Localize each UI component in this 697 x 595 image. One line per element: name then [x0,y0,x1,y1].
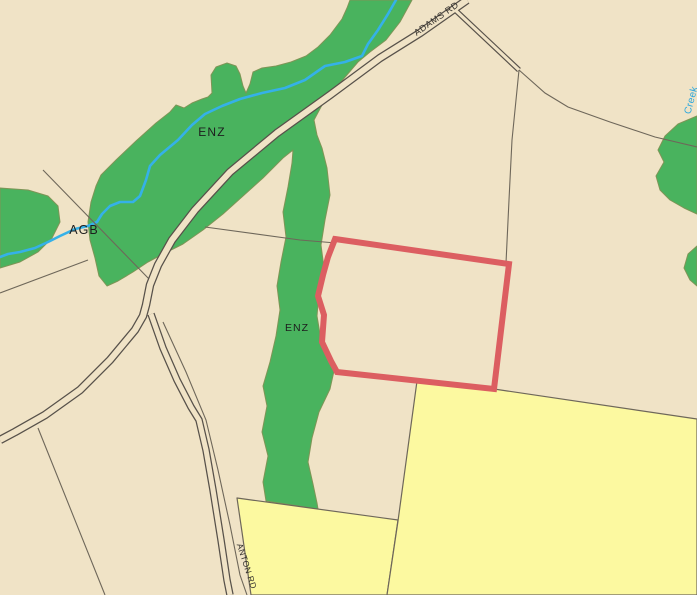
map-viewport[interactable]: ENZ ENZ AGB ADAMS RD ANTON RD Creek [0,0,697,595]
yellow-parcel-large[interactable] [387,381,697,595]
zone-label-enz-upper: ENZ [198,125,226,139]
zone-label-agb: AGB [69,223,98,237]
zone-label-enz-strip: ENZ [285,322,309,334]
map-canvas[interactable]: ENZ ENZ AGB ADAMS RD ANTON RD Creek [0,0,697,595]
